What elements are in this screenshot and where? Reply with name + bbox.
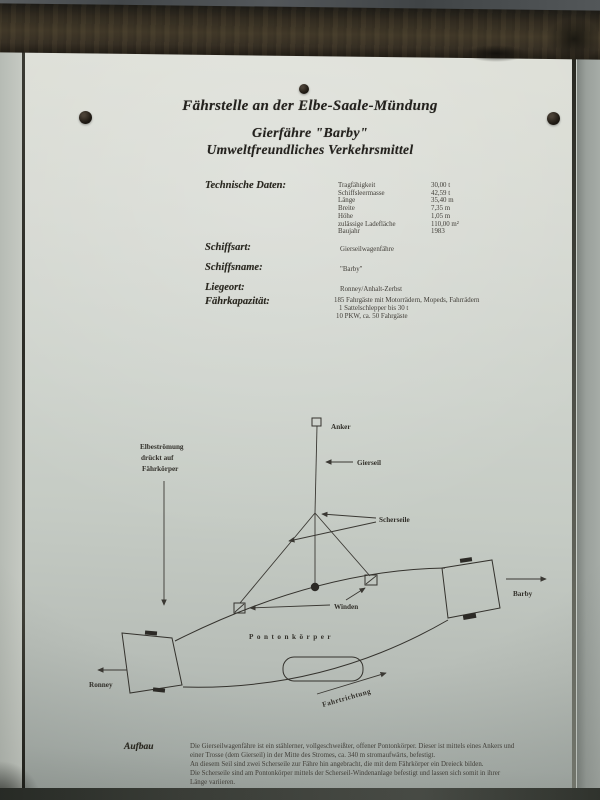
capacity-line: 1 Sattelschlepper bis 30 t: [339, 305, 480, 313]
ronney-label: Ronney: [89, 681, 113, 689]
ferry-schematic-diagram: Anker Gierseil Elbeströmung drückt auf F…: [85, 405, 565, 740]
right-ramp-fitting: [463, 613, 477, 620]
cabin: [283, 657, 363, 681]
bottom-frame-edge: [0, 788, 600, 800]
table-row: Baujahr1983: [338, 228, 472, 236]
capacity-label: Fährkapazität:: [205, 297, 270, 308]
hull-lower-edge: [183, 620, 448, 687]
table-row: Höhe1,05 m: [338, 213, 472, 221]
screw: [299, 84, 309, 94]
technical-data-table: Tragfähigkeit30,00 t Schiffsleermasse42,…: [338, 182, 472, 236]
pontonkoerper-label: Pontonkörper: [249, 633, 334, 641]
wall-strip: [577, 6, 600, 800]
ship-type-value: Gierseilwagenfähre: [340, 247, 394, 254]
sign-subtitle-ferry-name: Gierfähre "Barby": [90, 127, 530, 141]
sign-title: Fährstelle an der Elbe-Saale-Mündung: [90, 99, 530, 114]
ship-name-value: "Barby": [340, 267, 362, 274]
gierseil-cable-line: [315, 426, 317, 513]
ship-type-label: Schiffsart:: [205, 243, 251, 254]
top-right-shadow: [548, 18, 600, 60]
left-frame-seam: [22, 44, 25, 800]
capacity-line: 10 PKW, ca. 50 Fahrgäste: [336, 313, 480, 321]
ship-name-label: Schiffsname:: [205, 263, 263, 274]
right-ramp: [442, 560, 500, 618]
aufbau-heading: Aufbau: [124, 743, 154, 753]
aufbau-line: Die Scherseile sind am Pontonkörper mitt…: [190, 769, 514, 778]
anchor-symbol: [312, 418, 321, 426]
hull-upper-edge: [175, 568, 445, 641]
screw: [79, 111, 92, 124]
winden-annotation-arrow-left: [250, 605, 330, 608]
capacity-lines: 185 Fahrgäste mit Motorrädern, Mopeds, F…: [334, 297, 480, 321]
table-row: zulässige Ladefläche110,00 m²: [338, 221, 472, 229]
aufbau-paragraph: Die Gierseilwagenfähre ist ein stählerne…: [190, 742, 514, 787]
gierseil-label: Gierseil: [357, 459, 381, 467]
current-label-line2: drückt auf: [141, 454, 174, 462]
scherseile-annotation-arrow-2: [289, 522, 376, 541]
technical-data-heading: Technische Daten:: [205, 181, 286, 192]
aufbau-line: Die Gierseilwagenfähre ist ein stählerne…: [190, 742, 514, 751]
home-port-label: Liegeort:: [205, 283, 245, 294]
left-frame-strip: [0, 40, 23, 800]
photo-of-ferry-info-board: Fährstelle an der Elbe-Saale-Mündung Gie…: [0, 0, 600, 800]
travel-direction-arrow: [317, 673, 386, 694]
scherseile-label: Scherseile: [379, 516, 410, 524]
screw: [547, 112, 560, 125]
winden-label: Winden: [334, 603, 358, 611]
aufbau-line: Länge variieren.: [190, 778, 514, 787]
sign-subtitle-slogan: Umweltfreundliches Verkehrsmittel: [90, 143, 530, 157]
winden-annotation-arrow-right: [346, 588, 365, 600]
table-row: Schiffsleermasse42,59 t: [338, 190, 472, 198]
left-ramp: [122, 633, 182, 693]
gierseil-attachment-point: [311, 583, 319, 591]
aufbau-line: einer Trosse (dem Gierseil) in der Mitte…: [190, 751, 514, 760]
scherseile-annotation-arrow-1: [322, 514, 376, 518]
right-frame-seam: [572, 42, 576, 800]
table-row: Breite7,35 m: [338, 205, 472, 213]
left-ramp-fitting: [145, 630, 157, 635]
beam-shadow: [466, 45, 526, 62]
right-winch-detail: [366, 576, 376, 584]
table-row: Tragfähigkeit30,00 t: [338, 182, 472, 190]
barby-label: Barby: [513, 590, 533, 598]
current-label-line3: Fährkörper: [142, 465, 179, 473]
table-row: Länge35,40 m: [338, 197, 472, 205]
aufbau-line: An diesem Seil sind zwei Scherseile zur …: [190, 760, 514, 769]
right-ramp-fitting: [460, 557, 472, 563]
anchor-label: Anker: [331, 423, 351, 431]
home-port-value: Ronney/Anhalt-Zerbst: [340, 287, 402, 294]
current-label-line1: Elbeströmung: [140, 443, 184, 451]
capacity-line: 185 Fahrgäste mit Motorrädern, Mopeds, F…: [334, 297, 480, 305]
scherseil-right-line: [315, 513, 370, 576]
